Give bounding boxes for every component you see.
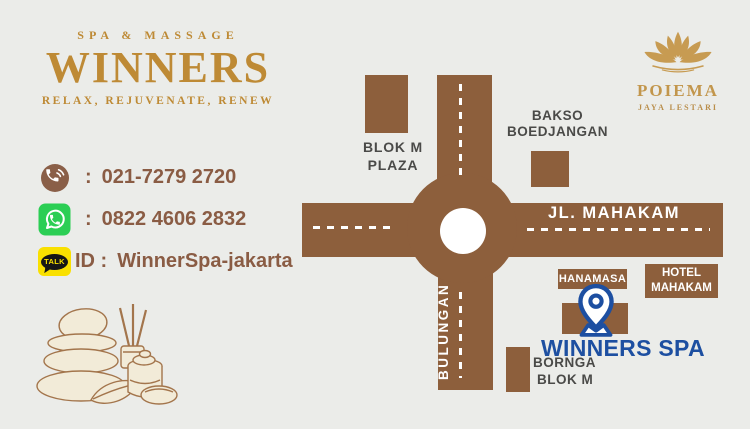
destination-label: WINNERS SPA: [541, 335, 705, 362]
brand-category: SPA & MASSAGE: [38, 28, 278, 43]
poiema-subtitle: JAYA LESTARI: [628, 103, 728, 112]
kakao-row: TALK ID :WinnerSpa-jakarta: [38, 245, 293, 278]
spa-stones-illustration: [33, 300, 183, 417]
hotel-mahakam-building: HOTELMAHAKAM: [645, 264, 718, 298]
roundabout-island: [440, 208, 486, 254]
blok-m-plaza-building: [365, 75, 408, 133]
poiema-name: POIEMA: [628, 81, 728, 101]
brand-name: WINNERS: [38, 45, 278, 91]
street-name-bulungan: BULUNGAN: [436, 292, 451, 380]
phone-number: :021-7279 2720: [85, 166, 236, 189]
road-bulungan-north: [437, 75, 492, 187]
street-name-mahakam: JL. MAHAKAM: [548, 204, 680, 223]
lane-divider-east: [527, 228, 710, 231]
whatsapp-icon: [38, 203, 71, 236]
lane-divider-west: [313, 226, 393, 229]
bakso-boedjangan-label: BAKSO BOEDJANGAN: [495, 108, 620, 140]
whatsapp-row: :0822 4606 2832: [38, 203, 293, 236]
poiema-logo: POIEMA JAYA LESTARI: [628, 30, 728, 112]
contact-list: :021-7279 2720 :0822 4606 2832 TALK: [38, 161, 293, 287]
phone-icon: [38, 163, 71, 193]
blok-m-plaza-label: BLOK M PLAZA: [348, 139, 438, 174]
kakao-id: ID :WinnerSpa-jakarta: [75, 250, 293, 273]
bakso-boedjangan-building: [531, 151, 569, 187]
lane-divider-north: [459, 84, 462, 176]
lane-divider-south: [459, 292, 462, 378]
bornga-building: [506, 347, 530, 392]
brand-tagline: RELAX, REJUVENATE, RENEW: [38, 95, 278, 107]
lotus-icon: [639, 61, 717, 78]
kakaotalk-icon: TALK: [38, 247, 71, 276]
phone-row: :021-7279 2720: [38, 161, 293, 194]
location-pin-icon: [573, 283, 619, 342]
spa-flyer-card: SPA & MASSAGE WINNERS RELAX, REJUVENATE,…: [0, 0, 750, 429]
brand-block: SPA & MASSAGE WINNERS RELAX, REJUVENATE,…: [38, 28, 278, 107]
whatsapp-number: :0822 4606 2832: [85, 208, 246, 231]
